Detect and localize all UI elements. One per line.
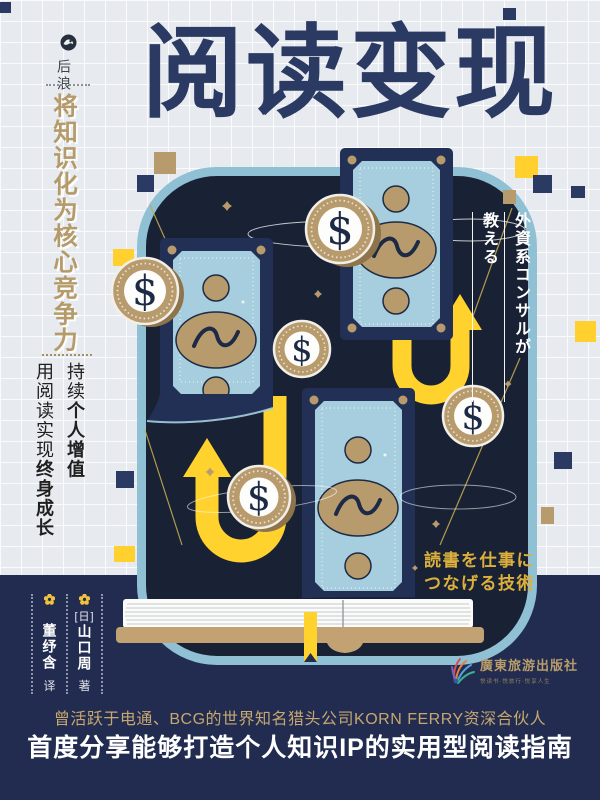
author-name: 山口周 xyxy=(75,624,95,672)
deco-square xyxy=(554,452,572,469)
publisher-block: 廣東旅游出版社 悦读书·悦旅行·悦享人生 xyxy=(450,655,590,685)
headline-divider xyxy=(42,354,92,356)
deco-square xyxy=(113,249,134,266)
imprint-divider xyxy=(46,84,90,86)
dotted-separator xyxy=(66,594,68,694)
translator-column: 董纾含 译 xyxy=(34,594,65,694)
deco-square xyxy=(575,321,596,342)
flower-icon xyxy=(44,594,55,605)
deco-square xyxy=(137,175,154,192)
dotted-separator xyxy=(101,594,103,694)
deco-square xyxy=(116,471,134,488)
deco-square xyxy=(533,175,552,193)
author-role: 著 xyxy=(78,677,90,694)
publisher-fan-icon xyxy=(450,655,476,685)
wave-logo-icon xyxy=(60,34,77,51)
subtitle-text: 持续 xyxy=(65,362,85,401)
selling-line: 首度分享能够打造个人知识IP的实用型阅读指南 xyxy=(0,728,600,764)
authors-block: 董纾含 译 [日] 山口周 著 xyxy=(30,594,104,696)
vertical-headline: 将知识化为核心竞争力 xyxy=(46,93,81,353)
jp-vertical-line2: 教える xyxy=(472,212,500,402)
subtitle-column-2: 用阅读实现终身成长 xyxy=(31,362,57,547)
deco-square xyxy=(154,152,176,174)
deco-square xyxy=(541,507,554,524)
deco-square xyxy=(114,546,135,562)
author-origin: [日] xyxy=(74,608,94,624)
publisher-tagline: 悦读书·悦旅行·悦享人生 xyxy=(480,677,578,685)
subtitle-text: 用阅读实现 xyxy=(34,362,54,460)
subtitle-text-bold: 终身成长 xyxy=(34,460,54,538)
imprint-name: 后浪 xyxy=(53,59,73,93)
dotted-separator xyxy=(31,594,33,694)
translator-role: 译 xyxy=(43,677,55,694)
vertical-subtitle: 持续个人增值 用阅读实现终身成长 xyxy=(38,362,88,547)
author-column: [日] 山口周 著 xyxy=(69,594,100,694)
credential-line: 曾活跃于电通、BCG的世界知名猎头公司KORN FERRY资深合伙人 xyxy=(0,705,600,729)
jp-subtitle-line2: つなげる技術 xyxy=(424,573,574,596)
jp-vertical-line1: 外資系コンサルが xyxy=(504,212,532,402)
jp-subtitle-line1: 読書を仕事に xyxy=(424,550,574,573)
translator-name: 董纾含 xyxy=(40,623,60,671)
publisher-name: 廣東旅游出版社 xyxy=(480,655,578,674)
flower-icon xyxy=(79,594,90,605)
deco-square xyxy=(0,2,11,13)
book-title: 阅读变现 xyxy=(100,22,600,127)
subtitle-text-bold: 个人增值 xyxy=(65,401,85,479)
jp-vertical-tagline: 外資系コンサルが 教える xyxy=(468,212,532,402)
jp-subtitle: 読書を仕事に つなげる技術 xyxy=(424,550,574,596)
deco-square xyxy=(571,186,585,198)
subtitle-column-1: 持续个人增值 xyxy=(62,362,88,547)
book-cover: { "cover": { "title": "阅读变现", "imprint":… xyxy=(0,0,600,800)
